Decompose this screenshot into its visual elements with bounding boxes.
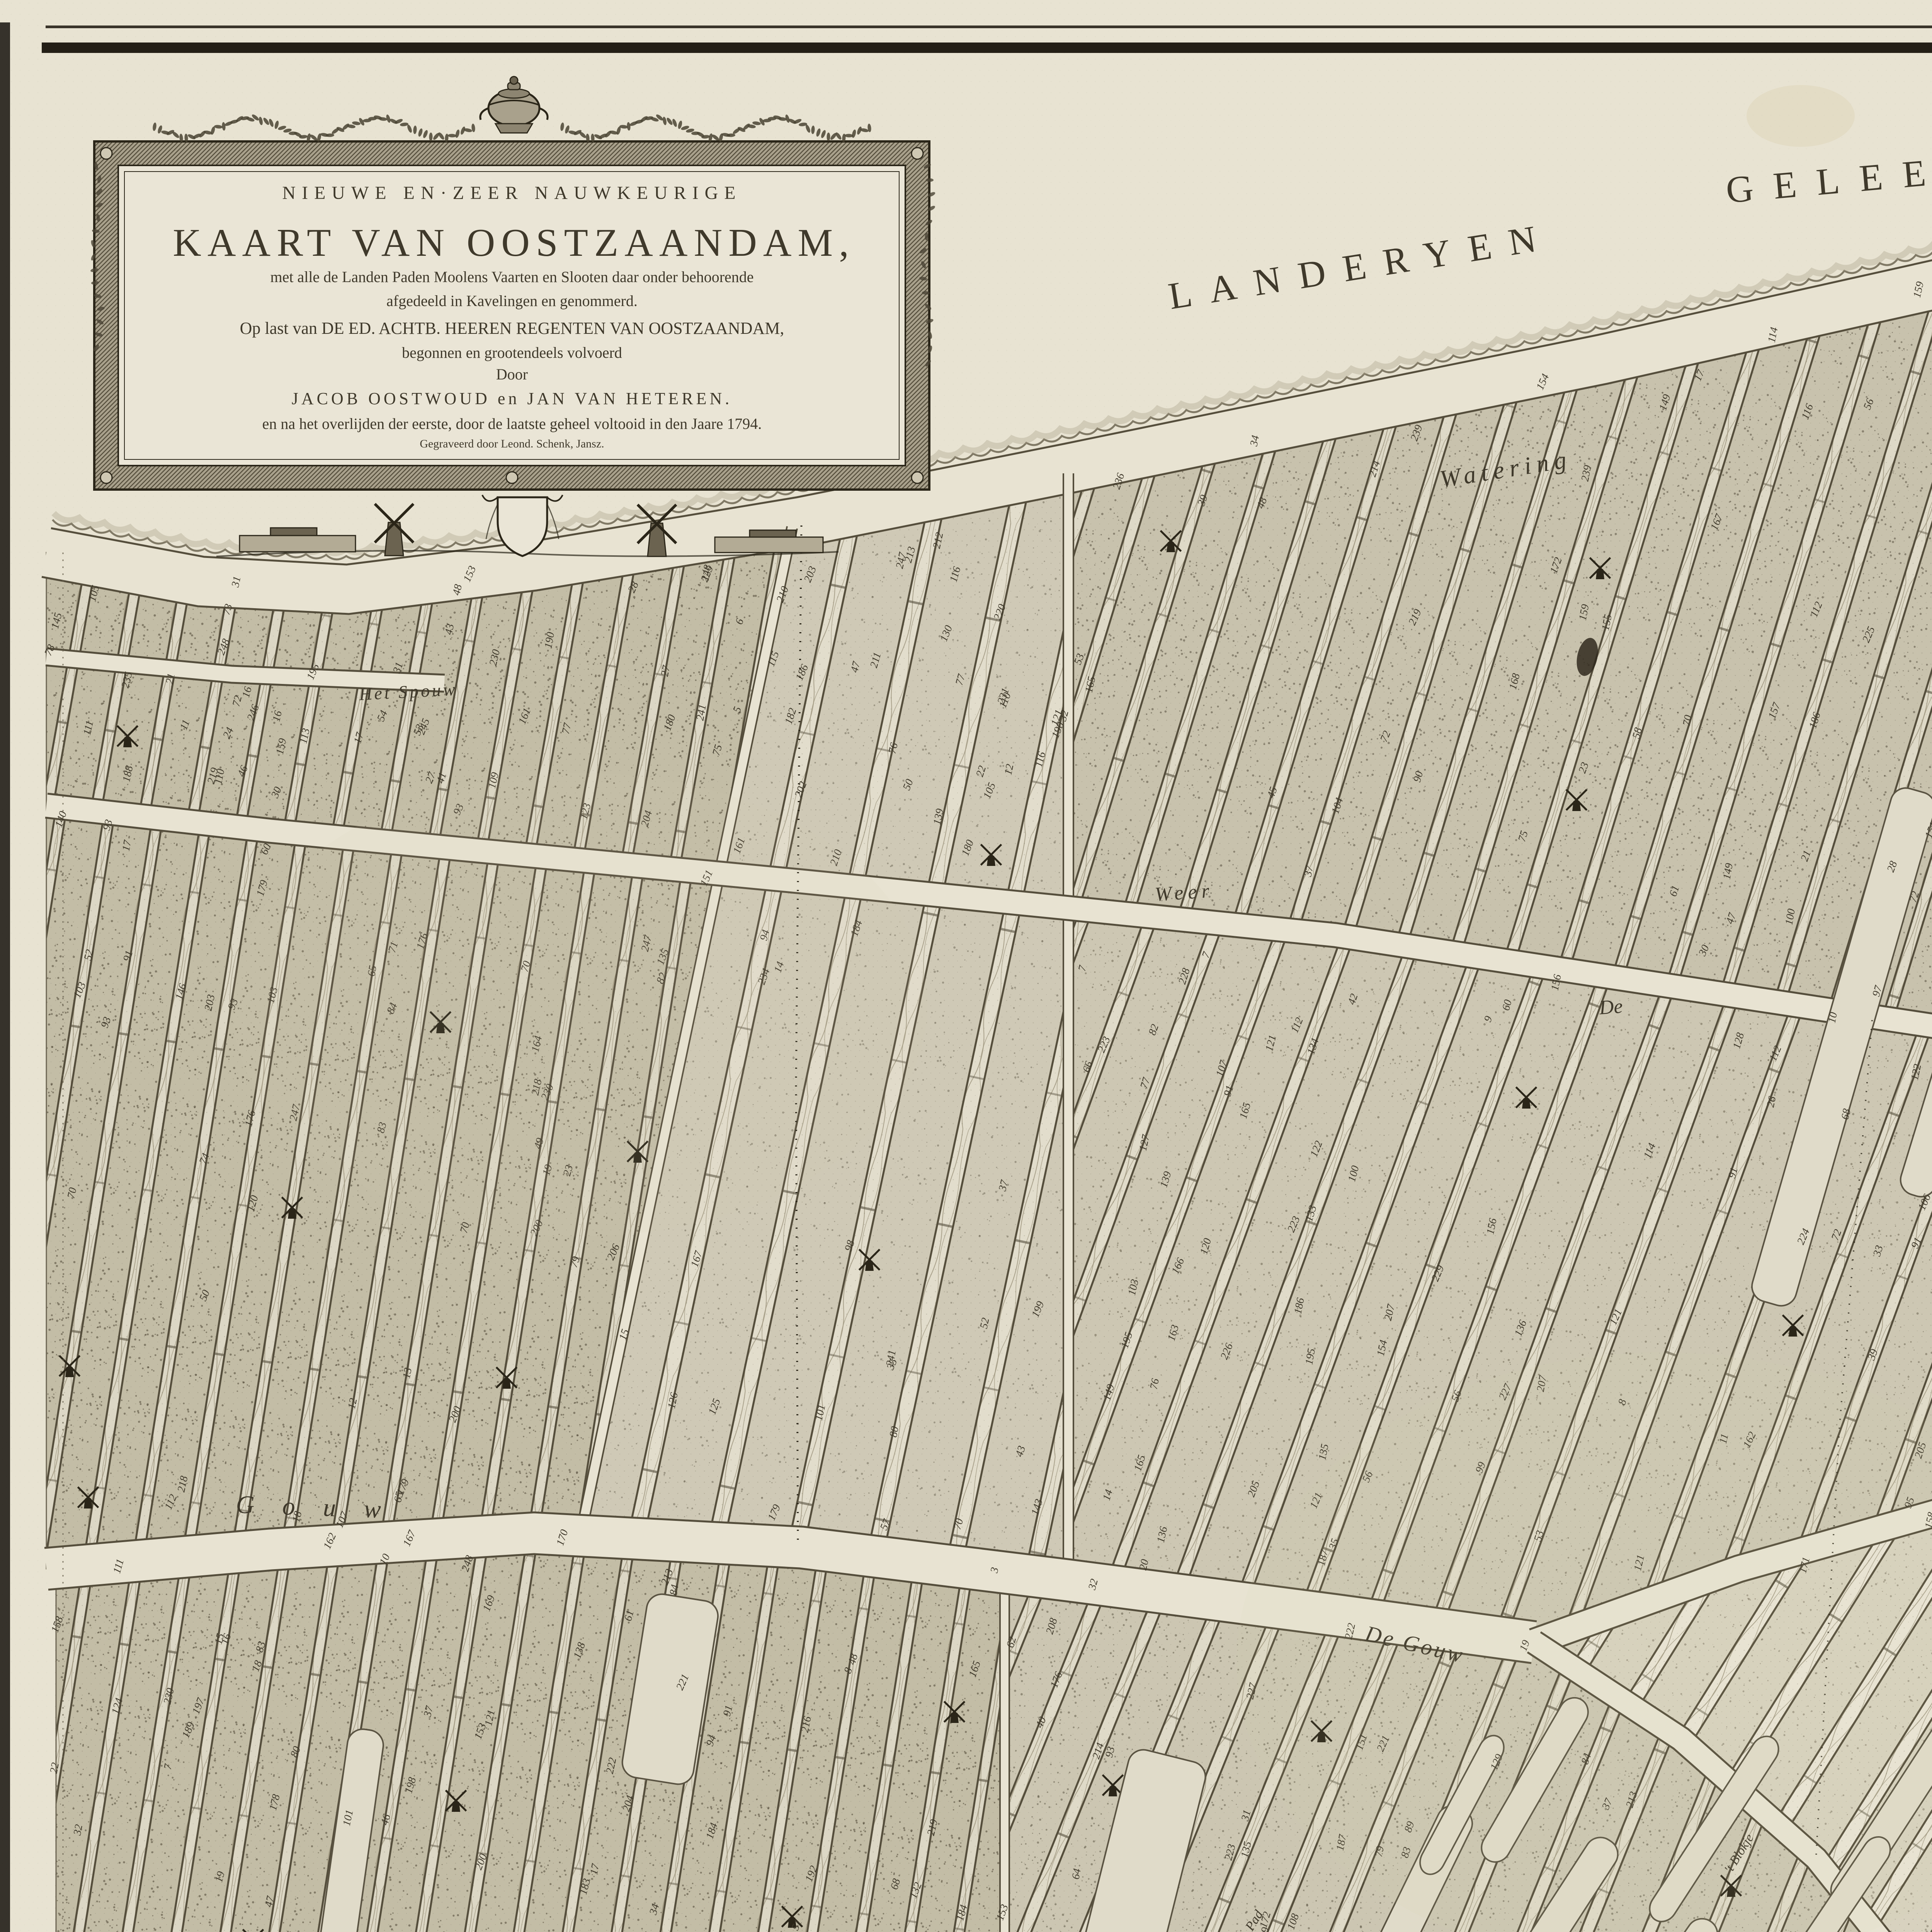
svg-text:32: 32 (71, 1823, 85, 1837)
svg-text:Op last van DE ED. ACHTB. HEER: Op last van DE ED. ACHTB. HEEREN REGENTE… (240, 319, 784, 338)
svg-text:met alle de Landen Paden Moole: met alle de Landen Paden Moolens Vaarten… (270, 268, 753, 286)
svg-text:80: 80 (887, 1425, 901, 1438)
svg-text:70: 70 (1680, 714, 1694, 727)
svg-text:en na het overlijden der eerst: en na het overlijden der eerste, door de… (262, 415, 762, 432)
svg-text:13: 13 (400, 1367, 414, 1379)
svg-text:Door: Door (496, 366, 528, 383)
svg-text:JACOB OOSTWOUD en JAN VAN HETE: JACOB OOSTWOUD en JAN VAN HETEREN. (292, 389, 733, 408)
svg-text:64: 64 (1070, 1867, 1083, 1880)
svg-text:Weer: Weer (1154, 879, 1215, 906)
svg-text:34: 34 (1248, 434, 1262, 447)
svg-text:22: 22 (48, 1762, 61, 1774)
svg-text:afgedeeld in Kavelingen en gen: afgedeeld in Kavelingen en genommerd. (386, 292, 638, 310)
svg-text:Gegraveerd door Leond. Schenk,: Gegraveerd door Leond. Schenk, Jansz. (420, 437, 604, 450)
svg-text:KAART VAN OOSTZAANDAM,: KAART VAN OOSTZAANDAM, (173, 221, 855, 265)
svg-text:G o u w: G o u w (235, 1490, 392, 1524)
svg-text:NIEUWE EN·ZEER NAUWKEURIGE: NIEUWE EN·ZEER NAUWKEURIGE (282, 183, 742, 203)
svg-text:10: 10 (1826, 1011, 1840, 1024)
svg-text:begonnen en grootendeels volvo: begonnen en grootendeels volvoerd (402, 344, 622, 361)
svg-text:21: 21 (163, 672, 177, 685)
svg-text:76: 76 (1148, 1378, 1162, 1390)
svg-text:De: De (1598, 995, 1623, 1019)
